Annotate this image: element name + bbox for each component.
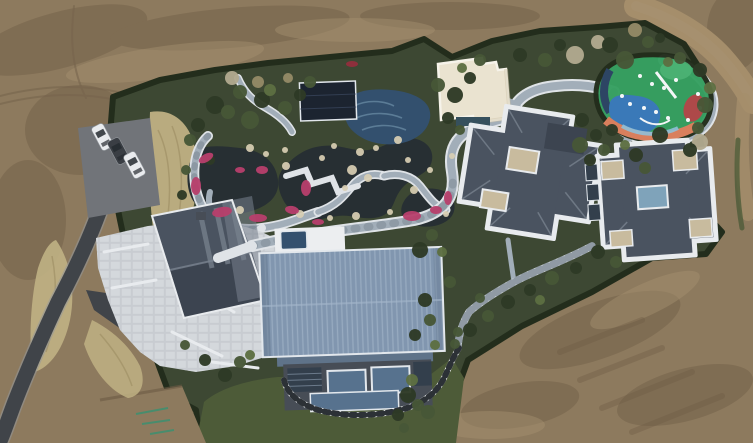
shrub — [453, 327, 463, 337]
shrub — [598, 144, 610, 156]
flower-bed — [235, 167, 245, 173]
solar-panel — [588, 204, 601, 221]
shrub — [554, 39, 566, 51]
shrub — [455, 125, 465, 135]
shrub — [674, 52, 686, 64]
rock — [405, 157, 411, 163]
shrub — [421, 405, 435, 419]
flower-bed — [191, 177, 201, 195]
shrub — [697, 97, 713, 113]
shrub — [447, 87, 463, 103]
shrub — [655, 33, 665, 43]
shrub — [642, 36, 654, 48]
shrub — [221, 105, 235, 119]
shrub — [430, 340, 440, 350]
shrub — [683, 143, 697, 157]
spa-pool — [281, 231, 308, 250]
shrub — [294, 89, 306, 101]
shrub — [501, 295, 515, 309]
shrub — [444, 276, 456, 288]
shrub — [437, 247, 447, 257]
rock — [364, 174, 372, 182]
flower-bed — [249, 214, 267, 222]
play-equipment — [686, 118, 690, 122]
rock — [263, 151, 269, 157]
shrub — [513, 48, 527, 62]
dirt-patch — [275, 18, 435, 42]
shrub — [457, 63, 467, 73]
play-equipment — [650, 82, 654, 86]
shrub — [606, 124, 618, 136]
shrub — [233, 85, 247, 99]
rock — [246, 144, 254, 152]
rock — [427, 167, 433, 173]
shrub — [406, 374, 418, 386]
shrub — [572, 137, 588, 153]
shrub — [591, 245, 605, 259]
flower-bed-red — [346, 61, 358, 67]
play-equipment — [662, 86, 666, 90]
shrub — [482, 310, 494, 322]
shrub — [180, 340, 190, 350]
shrub — [400, 387, 416, 403]
shrub — [464, 72, 476, 84]
play-equipment — [654, 110, 658, 114]
shrub — [474, 54, 486, 66]
aerial-photo — [0, 0, 753, 443]
shrub — [584, 154, 596, 166]
shrub — [450, 339, 460, 349]
flower-bed — [403, 211, 421, 221]
flat-roof-pad — [506, 147, 539, 173]
shrub — [426, 229, 438, 241]
parking-pad — [78, 118, 160, 218]
shrub — [424, 314, 436, 326]
shrub — [538, 53, 552, 67]
shrub — [463, 323, 477, 337]
flower-bed — [256, 166, 268, 174]
shrub — [191, 118, 205, 132]
shrub — [575, 113, 589, 127]
rock — [327, 215, 333, 221]
flower-bed — [430, 206, 442, 214]
shrub — [399, 423, 409, 433]
rock — [331, 143, 337, 149]
play-equipment — [638, 74, 642, 78]
shrub — [225, 71, 239, 85]
flat-roof-pad — [480, 189, 508, 211]
shrub — [181, 165, 191, 175]
shrub — [692, 122, 704, 134]
rock — [319, 155, 325, 161]
aerial-photo-canvas — [0, 0, 753, 443]
shrub — [566, 46, 584, 64]
play-equipment — [628, 102, 632, 106]
play-equipment — [674, 78, 678, 82]
shrub — [177, 190, 187, 200]
shrub — [704, 82, 716, 94]
shrub — [693, 63, 707, 77]
shrub — [264, 84, 276, 96]
play-equipment — [620, 94, 624, 98]
shrub — [610, 256, 622, 268]
rock — [387, 209, 393, 215]
rock — [356, 148, 364, 156]
shrub — [245, 350, 255, 360]
shrub — [524, 284, 536, 296]
rock — [236, 206, 244, 214]
shrub — [252, 76, 264, 88]
shrub — [570, 262, 582, 274]
rock — [394, 136, 402, 144]
rock — [282, 162, 290, 170]
flat-roof-pad — [601, 160, 624, 179]
dirt-road-spur — [742, 100, 748, 214]
shrub — [199, 354, 211, 366]
rock — [342, 185, 348, 191]
shrub — [639, 162, 651, 174]
shrub — [535, 295, 545, 305]
shrub — [620, 140, 630, 150]
chimney — [196, 212, 206, 220]
flower-bed — [301, 180, 311, 196]
flower-bed — [444, 191, 452, 205]
shrub — [616, 51, 634, 69]
flat-roof-pad — [689, 218, 712, 237]
shrub — [629, 148, 643, 162]
courtyard-skylight — [637, 185, 668, 209]
shrub — [602, 37, 618, 53]
flat-roof-pad — [610, 230, 633, 247]
shrub — [412, 242, 428, 258]
rock — [282, 147, 288, 153]
rock — [410, 186, 418, 194]
shrub — [628, 23, 642, 37]
shrub — [304, 76, 316, 88]
play-equipment — [696, 92, 700, 96]
shrub — [545, 271, 559, 285]
shrub — [392, 409, 404, 421]
solar-panel — [586, 184, 599, 201]
rock — [443, 211, 449, 217]
play-equipment — [666, 116, 670, 120]
solar-panel — [585, 164, 598, 181]
shrub — [241, 111, 259, 129]
shrub — [475, 293, 485, 303]
rock — [373, 145, 379, 151]
shrub — [184, 134, 196, 146]
shrub — [278, 101, 292, 115]
rock — [352, 212, 360, 220]
shrub — [283, 73, 293, 83]
shrub — [234, 356, 246, 368]
shrub — [431, 78, 445, 92]
shrub — [418, 293, 432, 307]
shrub — [218, 368, 232, 382]
shrub — [442, 112, 454, 124]
rock — [449, 153, 455, 159]
red-flower-beds — [346, 61, 358, 67]
shrub — [590, 129, 602, 141]
play-equipment — [642, 106, 646, 110]
shrub — [652, 127, 668, 143]
rock — [347, 165, 357, 175]
shrub — [409, 329, 421, 341]
shrub — [663, 57, 673, 67]
flower-bed — [312, 219, 324, 225]
